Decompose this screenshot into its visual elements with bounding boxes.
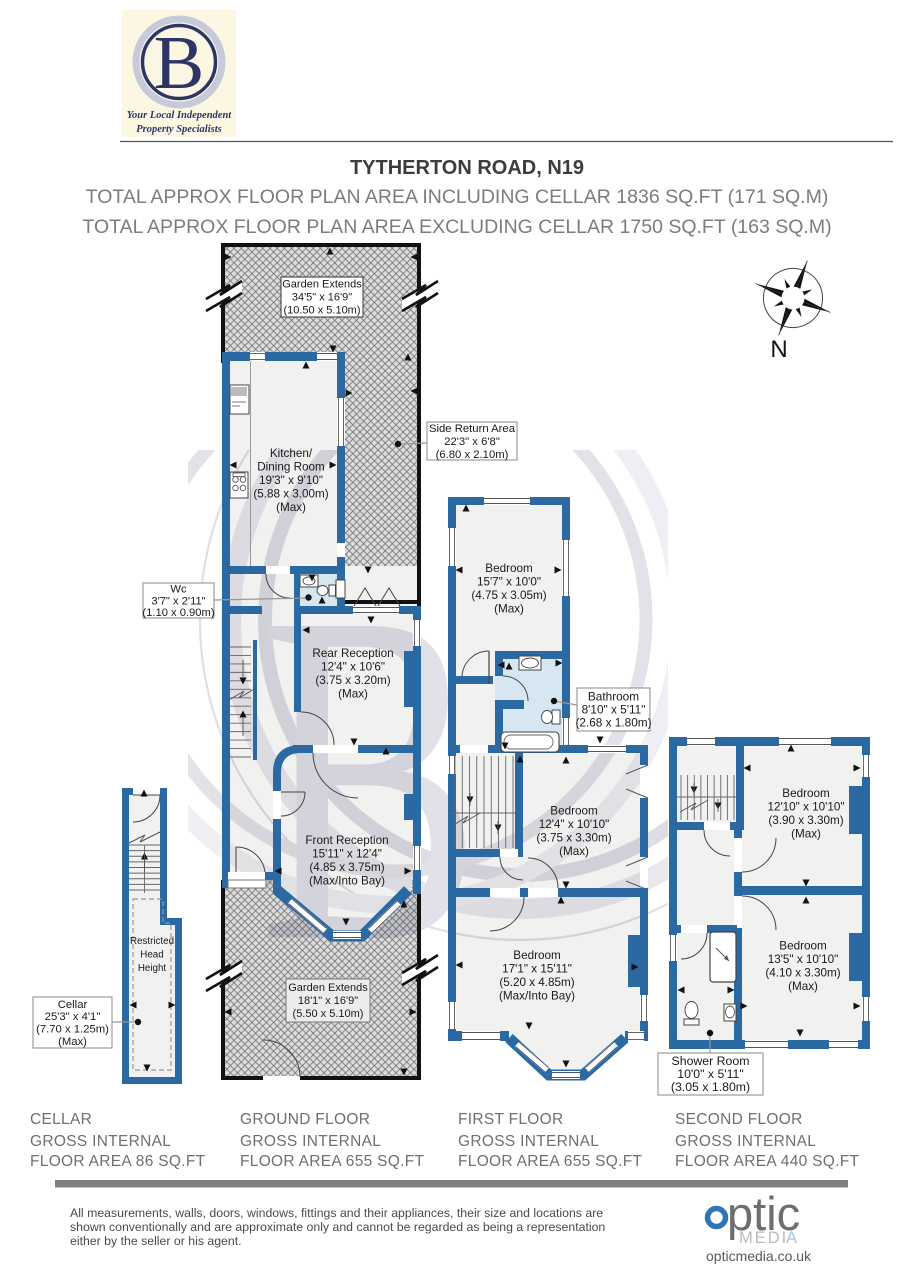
svg-text:Shower Room: Shower Room — [672, 1054, 750, 1068]
svg-text:All measurements, walls, doors: All measurements, walls, doors, windows,… — [70, 1206, 603, 1220]
svg-text:Bedroom: Bedroom — [550, 805, 597, 818]
svg-text:(Max): (Max) — [559, 845, 589, 858]
svg-text:17'1" x 15'11": 17'1" x 15'11" — [502, 963, 572, 976]
svg-text:Garden Extends: Garden Extends — [288, 982, 368, 994]
svg-text:(Max): (Max) — [276, 501, 306, 514]
svg-text:(Max/Into Bay): (Max/Into Bay) — [309, 875, 385, 888]
svg-text:(Max/Into Bay): (Max/Into Bay) — [499, 990, 575, 1003]
svg-text:GROSS INTERNAL: GROSS INTERNAL — [458, 1133, 599, 1150]
svg-text:FIRST FLOOR: FIRST FLOOR — [458, 1111, 564, 1128]
svg-text:Kitchen/: Kitchen/ — [270, 447, 313, 460]
svg-text:(5.20 x 4.85m): (5.20 x 4.85m) — [499, 976, 574, 989]
svg-text:(10.50 x 5.10m): (10.50 x 5.10m) — [283, 305, 360, 317]
svg-text:(Max): (Max) — [494, 603, 524, 616]
svg-text:Property Specialists: Property Specialists — [136, 124, 221, 135]
svg-text:GROSS INTERNAL: GROSS INTERNAL — [30, 1133, 171, 1150]
svg-text:FLOOR AREA 86 SQ.FT: FLOOR AREA 86 SQ.FT — [30, 1153, 206, 1170]
svg-text:(Max): (Max) — [788, 980, 818, 993]
svg-text:shown conventionally and are a: shown conventionally and are approximate… — [70, 1220, 605, 1234]
svg-text:(Max): (Max) — [791, 828, 821, 841]
svg-text:Dining Room: Dining Room — [257, 461, 325, 474]
svg-text:12'4" x 10'6": 12'4" x 10'6" — [321, 661, 385, 674]
svg-text:(6.80 x 2.10m): (6.80 x 2.10m) — [436, 449, 509, 461]
svg-text:18'1" x 16'9": 18'1" x 16'9" — [298, 995, 358, 1007]
svg-text:(4.75 x 3.05m): (4.75 x 3.05m) — [471, 589, 546, 602]
svg-text:(3.05 x 1.80m): (3.05 x 1.80m) — [671, 1080, 750, 1094]
svg-text:MEDI: MEDI — [739, 1229, 788, 1247]
svg-text:25'3" x 4'1": 25'3" x 4'1" — [45, 1011, 101, 1023]
svg-text:(Max): (Max) — [58, 1036, 87, 1048]
svg-text:15'11" x 12'4": 15'11" x 12'4" — [312, 848, 382, 861]
svg-text:(5.50 x 5.10m): (5.50 x 5.10m) — [293, 1008, 364, 1020]
svg-text:Bedroom: Bedroom — [513, 949, 560, 962]
svg-text:(5.88 x 3.00m): (5.88 x 3.00m) — [253, 488, 328, 501]
svg-text:Cellar: Cellar — [58, 999, 88, 1011]
svg-text:(4.10 x 3.30m): (4.10 x 3.30m) — [765, 967, 840, 980]
svg-text:13'5" x 10'10": 13'5" x 10'10" — [768, 953, 839, 966]
svg-text:(2.68 x 1.80m): (2.68 x 1.80m) — [575, 716, 651, 730]
svg-text:N: N — [770, 336, 787, 363]
svg-text:(3.75 x 3.30m): (3.75 x 3.30m) — [536, 832, 611, 845]
svg-text:(7.70 x 1.25m): (7.70 x 1.25m) — [36, 1023, 109, 1035]
svg-text:A: A — [786, 1229, 797, 1247]
svg-text:SECOND FLOOR: SECOND FLOOR — [675, 1111, 803, 1128]
svg-text:(4.85 x 3.75m): (4.85 x 3.75m) — [309, 861, 384, 874]
svg-text:(3.90 x 3.30m): (3.90 x 3.30m) — [768, 814, 843, 827]
svg-text:Bedroom: Bedroom — [779, 940, 826, 953]
svg-text:3'7" x 2'11": 3'7" x 2'11" — [151, 595, 205, 607]
svg-text:10'0" x 5'11": 10'0" x 5'11" — [677, 1067, 744, 1081]
svg-text:22'3" x 6'8": 22'3" x 6'8" — [444, 436, 500, 448]
svg-text:GROSS INTERNAL: GROSS INTERNAL — [675, 1133, 816, 1150]
svg-text:Rear Reception: Rear Reception — [312, 647, 393, 660]
svg-text:TYTHERTON ROAD, N19: TYTHERTON ROAD, N19 — [350, 157, 584, 179]
svg-text:Bedroom: Bedroom — [782, 787, 829, 800]
svg-text:Restricted: Restricted — [130, 936, 174, 947]
svg-text:12'4" x 10'10": 12'4" x 10'10" — [539, 818, 610, 831]
svg-text:15'7" x 10'0": 15'7" x 10'0" — [477, 576, 541, 589]
svg-text:Wc: Wc — [170, 584, 187, 596]
svg-text:Height: Height — [138, 963, 167, 974]
svg-text:(Max): (Max) — [338, 688, 368, 701]
svg-text:19'3" x 9'10": 19'3" x 9'10" — [259, 474, 323, 487]
svg-text:8'10" x 5'11": 8'10" x 5'11" — [582, 703, 646, 717]
svg-text:34'5" x 16'9": 34'5" x 16'9" — [292, 292, 352, 304]
svg-text:GROSS INTERNAL: GROSS INTERNAL — [240, 1133, 381, 1150]
svg-text:Side Return Area: Side Return Area — [429, 423, 516, 435]
svg-text:FLOOR AREA 655 SQ.FT: FLOOR AREA 655 SQ.FT — [458, 1153, 643, 1170]
svg-text:Bedroom: Bedroom — [485, 562, 532, 575]
svg-text:Garden Extends: Garden Extends — [282, 279, 362, 291]
svg-text:12'10" x 10'10": 12'10" x 10'10" — [767, 801, 844, 814]
svg-text:Bathroom: Bathroom — [588, 690, 639, 704]
svg-text:(1.10 x 0.90m): (1.10 x 0.90m) — [142, 607, 214, 619]
svg-text:B: B — [259, 514, 481, 1040]
svg-text:TOTAL APPROX FLOOR PLAN AREA E: TOTAL APPROX FLOOR PLAN AREA EXCLUDING C… — [82, 216, 831, 238]
svg-text:FLOOR AREA 440 SQ.FT: FLOOR AREA 440 SQ.FT — [675, 1153, 860, 1170]
svg-text:FLOOR AREA 655 SQ.FT: FLOOR AREA 655 SQ.FT — [240, 1153, 425, 1170]
svg-text:either by the seller or his ag: either by the seller or his agent. — [70, 1234, 242, 1248]
svg-text:CELLAR: CELLAR — [30, 1111, 92, 1128]
svg-text:Head: Head — [140, 950, 163, 961]
svg-text:Your Local Independent: Your Local Independent — [127, 110, 233, 121]
svg-text:Front Reception: Front Reception — [305, 834, 388, 847]
svg-text:TOTAL APPROX FLOOR PLAN AREA I: TOTAL APPROX FLOOR PLAN AREA INCLUDING C… — [86, 186, 829, 208]
svg-text:(3.75 x 3.20m): (3.75 x 3.20m) — [315, 674, 390, 687]
svg-text:GROUND FLOOR: GROUND FLOOR — [240, 1111, 370, 1128]
svg-text:B: B — [154, 21, 205, 105]
svg-text:opticmedia.co.uk: opticmedia.co.uk — [706, 1248, 812, 1264]
